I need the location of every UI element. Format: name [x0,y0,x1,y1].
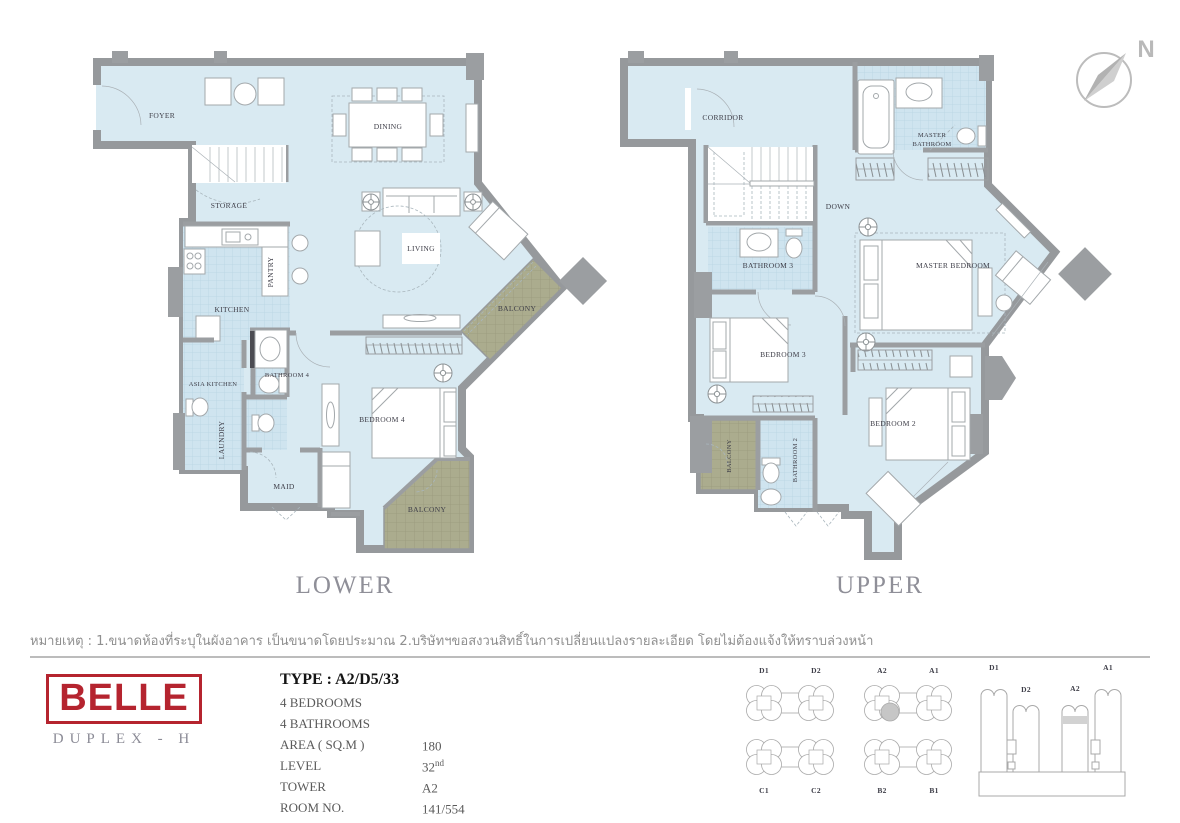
cabinet [950,356,972,377]
elevation-label-a2: A2 [1070,684,1080,693]
upper-floor-plan: CORRIDOR DOWN MASTER BATHROOM BATHROOM 3… [615,45,1120,590]
sofa [383,188,460,216]
keyplan-building-c [747,740,834,775]
room-label-bedroom3: BEDROOM 3 [760,350,806,359]
detail-row-roomno: ROOM NO. 141/554 [280,800,540,815]
bar-stool [292,235,308,251]
armchair [355,231,380,266]
unit-bathrooms: 4 BATHROOMS [280,716,540,731]
keyplan-highlighted-unit [881,703,899,721]
compass: N [1062,25,1162,120]
corner-column [559,257,607,305]
room-label-dining: DINING [374,122,403,131]
bar-stool [292,268,308,284]
room-label-asia-kitchen: ASIA KITCHEN [189,381,238,388]
lamp-symbol [363,194,379,210]
bay-column [985,356,1016,400]
detail-row-level: LEVEL 32nd [280,758,540,773]
room-label-storage: STORAGE [211,201,248,210]
elevation-podium [979,772,1125,796]
room-label-living: LIVING [407,244,435,253]
room-label-master-bathroom-2: BATHROOM [913,141,952,148]
room-label-maid: MAID [273,482,294,491]
unit-type: TYPE : A2/D5/33 [280,671,540,689]
round-table [996,295,1012,311]
corner-column [1058,247,1112,301]
shaft [196,316,220,341]
asia-kitchen-toilet [186,398,208,416]
room-label-balcony-bottom: BALCONY [408,505,447,514]
keyplan-building-a [865,686,952,721]
lamp-symbol [465,194,481,210]
room-label-pantry: PANTRY [266,256,275,287]
room-label-down: DOWN [826,202,851,211]
room-label-foyer: FOYER [149,111,175,120]
tv-cabinet-bedroom4 [322,384,339,446]
elevation-tower-a1 [1095,690,1121,773]
keyplan-label-a2: A2 [877,666,887,675]
elevation-tower-d1 [981,690,1007,773]
elevation-label-d1: D1 [989,663,999,672]
elevation-tower-a2 [1062,706,1088,772]
elevation-tower-d2 [1013,706,1039,772]
unit-bedrooms: 4 BEDROOMS [280,695,540,710]
console-table [466,104,478,152]
belle-logo-subtitle: DUPLEX - H [46,731,202,748]
room-label-bathroom4: BATHROOM 4 [265,372,310,379]
unit-details: TYPE : A2/D5/33 4 BEDROOMS 4 BATHROOMS A… [280,671,540,815]
bedroom4-wardrobe [366,337,462,354]
master-vanity [896,78,942,108]
room-label-laundry: LAUNDRY [217,421,226,460]
bathtub [858,80,894,154]
lamp-symbol [859,218,877,236]
compass-north-label: N [1137,36,1154,63]
room-label-bathroom2: BATHROOM 2 [792,438,799,482]
belle-logo: BELLE [46,674,202,724]
ceiling-fan-symbol [434,364,452,382]
keyplan-building-b [865,740,952,775]
building-elevation: D1 D2 A2 A1 [975,652,1155,802]
room-label-balcony: BALCONY [726,439,733,473]
detail-row-area: AREA ( SQ.M ) 180 [280,737,540,752]
keyplan-building-d [747,686,834,721]
brand-block: BELLE DUPLEX - H [46,674,202,748]
lamp-symbol [857,333,875,351]
keyplan-label-b1: B1 [929,786,938,795]
thai-disclaimer-note: หมายเหตุ : 1.ขนาดห้องที่ระบุในผังอาคาร เ… [30,630,1150,651]
keyplan-label-b2: B2 [877,786,886,795]
closet-bedroom2 [858,350,932,370]
keyplan-label-d1: D1 [759,666,769,675]
room-label-corridor: CORRIDOR [702,113,743,122]
lower-plan-title: LOWER [80,572,610,600]
lower-floor-plan: FOYER DINING STORAGE PANTRY KITCHEN LIVI… [80,45,610,590]
elevation-label-a1: A1 [1103,663,1113,672]
keyplan-label-c1: C1 [759,786,769,795]
keyplan-label-a1: A1 [929,666,939,675]
upper-plan-title: UPPER [630,572,1130,600]
keyplan-label-c2: C2 [811,786,821,795]
stairs-upper [708,147,814,221]
floorplan-brochure-page: { "compass": { "label": "N" }, "plans": … [0,0,1180,823]
room-label-balcony-side: BALCONY [498,304,537,313]
room-label-kitchen: KITCHEN [214,305,249,314]
tower-key-plans: D1 D2 A2 A1 C1 C2 B2 B1 [733,652,977,802]
room-label-master-bathroom-1: MASTER [918,132,947,139]
keyplan-label-d2: D2 [811,666,821,675]
detail-row-tower: TOWER A2 [280,779,540,794]
lamp-symbol [708,385,726,403]
elevation-label-d2: D2 [1021,685,1031,694]
room-label-bathroom3: BATHROOM 3 [743,261,794,270]
elevation-highlighted-level [1063,716,1087,724]
room-label-master-bedroom: MASTER BEDROOM [916,261,990,270]
bench [978,268,992,316]
tv-console [383,315,460,329]
room-label-bedroom2: BEDROOM 2 [870,419,916,428]
maid-bed [322,452,350,508]
wardrobe-bedroom3 [753,396,813,412]
room-label-bedroom4: BEDROOM 4 [359,415,405,424]
